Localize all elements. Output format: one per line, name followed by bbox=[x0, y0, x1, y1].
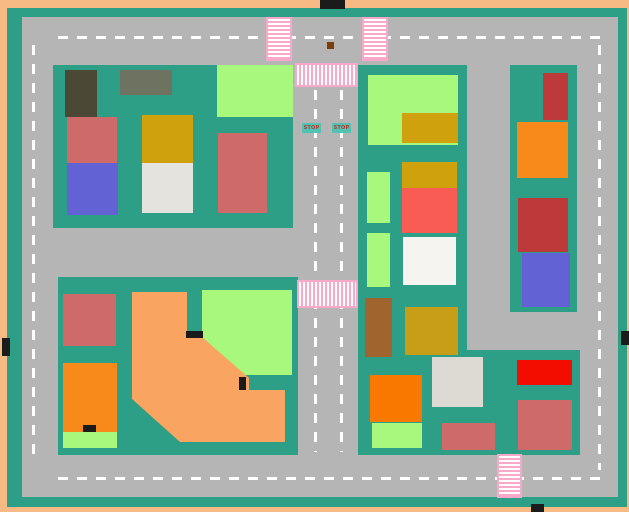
car-marker-right-border bbox=[621, 331, 629, 345]
stop-sign: STOP bbox=[302, 123, 321, 133]
car-marker-top-border bbox=[320, 0, 345, 9]
black-bar-step bbox=[239, 377, 246, 390]
black-bar-orange-building bbox=[83, 425, 96, 432]
town-map-canvas: STOPSTOP bbox=[0, 0, 629, 512]
car-marker-bottom-border bbox=[531, 504, 544, 512]
car-marker-left-border bbox=[2, 338, 10, 356]
stop-sign: STOP bbox=[332, 123, 351, 133]
markers-and-signs-layer: STOPSTOP bbox=[0, 0, 629, 512]
brown-dot-road bbox=[327, 42, 334, 49]
black-bar-notch bbox=[186, 331, 203, 338]
